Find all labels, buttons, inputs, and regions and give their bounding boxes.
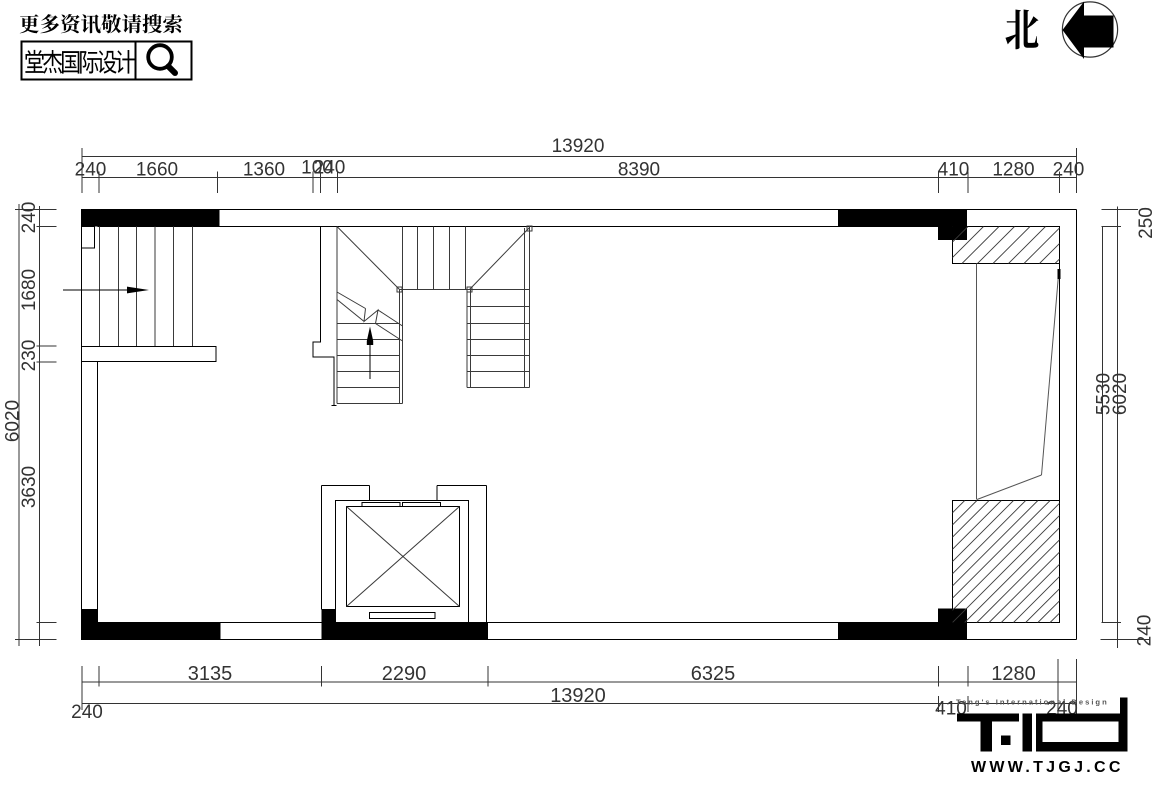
svg-text:250: 250 bbox=[1136, 207, 1157, 239]
svg-text:8390: 8390 bbox=[618, 160, 660, 181]
svg-text:1360: 1360 bbox=[243, 160, 285, 181]
svg-text:410: 410 bbox=[938, 160, 970, 181]
svg-text:240: 240 bbox=[19, 202, 40, 234]
svg-text:Tang's International Design: Tang's International Design bbox=[956, 698, 1109, 707]
svg-text:6020: 6020 bbox=[3, 400, 24, 442]
svg-text:3630: 3630 bbox=[19, 466, 40, 508]
svg-text:13920: 13920 bbox=[550, 685, 606, 707]
svg-text:240: 240 bbox=[75, 160, 107, 181]
svg-text:230: 230 bbox=[19, 340, 40, 372]
svg-text:240: 240 bbox=[1053, 160, 1085, 181]
svg-text:6325: 6325 bbox=[691, 663, 736, 685]
svg-text:6020: 6020 bbox=[1110, 373, 1131, 415]
svg-text:1660: 1660 bbox=[136, 160, 178, 181]
svg-text:1680: 1680 bbox=[19, 269, 40, 311]
svg-text:3135: 3135 bbox=[188, 663, 233, 685]
svg-text:1280: 1280 bbox=[992, 160, 1034, 181]
svg-text:240: 240 bbox=[1135, 615, 1156, 647]
svg-text:13920: 13920 bbox=[552, 136, 605, 157]
svg-text:240: 240 bbox=[314, 158, 346, 179]
svg-text:2290: 2290 bbox=[382, 663, 427, 685]
svg-text:1280: 1280 bbox=[991, 663, 1036, 685]
svg-text:240: 240 bbox=[71, 702, 103, 723]
svg-text:WWW.TJGJ.CC: WWW.TJGJ.CC bbox=[971, 759, 1124, 776]
